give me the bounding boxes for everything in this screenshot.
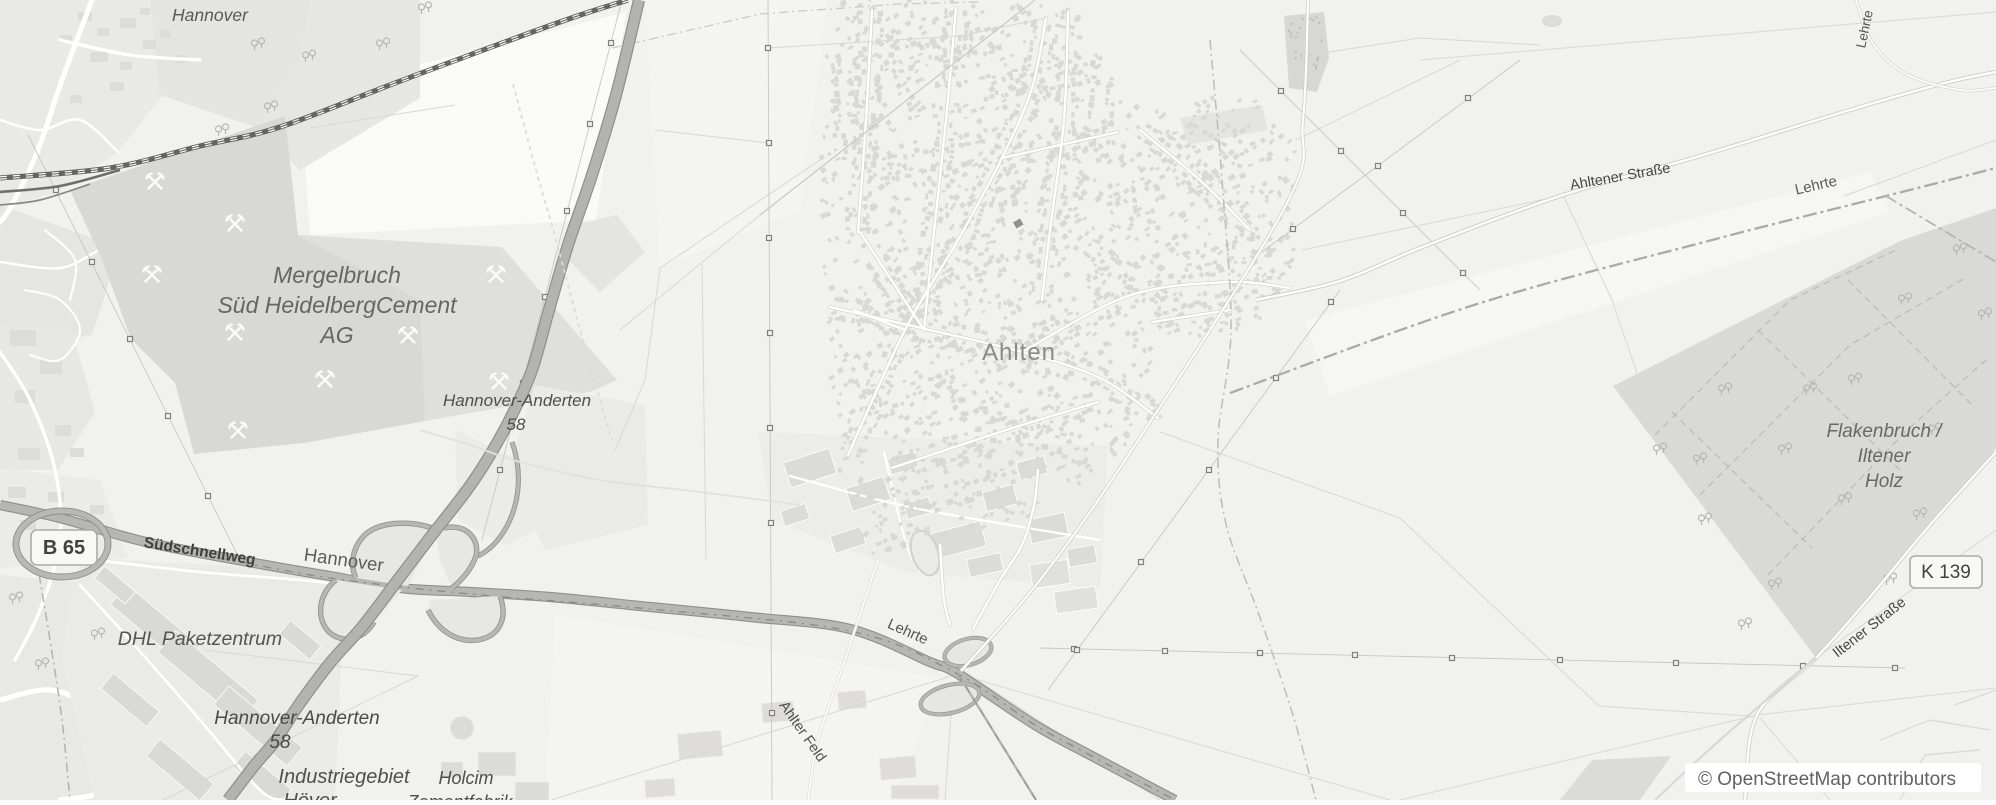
- svg-text:Iltener: Iltener: [1858, 446, 1911, 467]
- svg-text:AG: AG: [318, 322, 353, 348]
- svg-text:58: 58: [269, 732, 291, 753]
- svg-text:Holcim: Holcim: [438, 768, 493, 788]
- svg-text:Hannover-Anderten: Hannover-Anderten: [214, 708, 379, 729]
- svg-text:Zementfabrik: Zementfabrik: [406, 792, 513, 800]
- svg-text:Ahlten: Ahlten: [982, 339, 1056, 366]
- svg-text:Hannover-Anderten: Hannover-Anderten: [443, 391, 591, 410]
- svg-text:Holz: Holz: [1865, 471, 1904, 492]
- svg-text:K 139: K 139: [1921, 562, 1971, 583]
- svg-text:Süd HeidelbergCement: Süd HeidelbergCement: [217, 292, 458, 318]
- svg-text:© OpenStreetMap contributors: © OpenStreetMap contributors: [1698, 769, 1956, 790]
- svg-text:58: 58: [507, 415, 526, 434]
- svg-text:Industriegebiet: Industriegebiet: [278, 766, 411, 788]
- svg-text:Flakenbruch /: Flakenbruch /: [1826, 421, 1943, 442]
- svg-text:Mergelbruch: Mergelbruch: [273, 262, 401, 288]
- svg-text:DHL Paketzentrum: DHL Paketzentrum: [118, 628, 282, 650]
- svg-text:B 65: B 65: [43, 537, 85, 559]
- svg-text:Hannover: Hannover: [172, 5, 249, 25]
- svg-text:Höver: Höver: [283, 790, 338, 800]
